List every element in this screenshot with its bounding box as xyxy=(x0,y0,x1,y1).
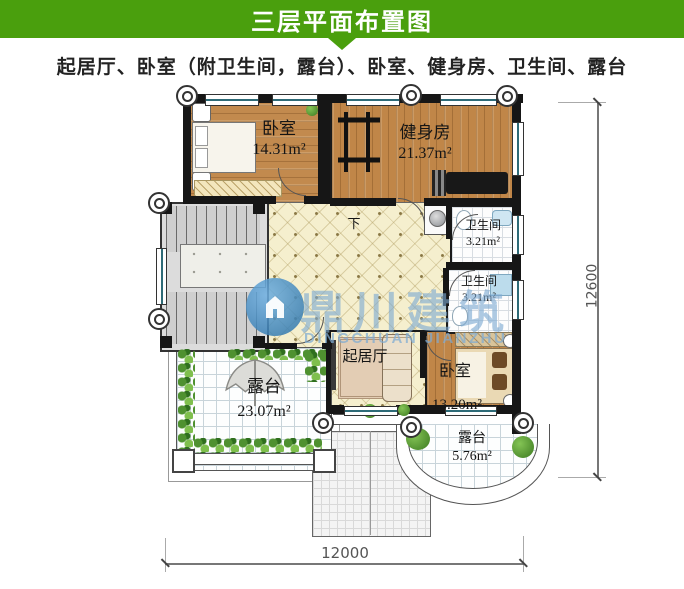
wall-left-upper xyxy=(183,94,191,204)
stair-landing xyxy=(180,244,266,288)
room-area: 21.37m² xyxy=(380,144,470,165)
room-area: 3.21m² xyxy=(452,234,514,250)
room-label-bedroom-bottom-area: 13.20m² xyxy=(424,396,490,416)
column-symbol xyxy=(312,412,334,434)
window xyxy=(440,94,497,106)
wall-bedroom-top-south xyxy=(188,196,276,204)
wall-living-bedroom-divider xyxy=(420,332,426,378)
sofa xyxy=(382,334,412,402)
plant-icon xyxy=(512,436,534,458)
terrace-railing xyxy=(176,453,330,465)
dim-line-bottom xyxy=(165,563,524,565)
bed-pillow xyxy=(195,126,208,146)
column-symbol xyxy=(400,416,422,438)
terrace-post xyxy=(172,449,195,473)
room-label-bedroom-top: 卧室 14.31m² xyxy=(238,118,320,161)
room-label-terrace-large: 露台 23.07m² xyxy=(218,376,310,423)
wall-hall-south xyxy=(322,343,332,349)
floor-plan-page: { "header": { "title": "三层平面布置图" }, "sub… xyxy=(0,0,684,589)
window xyxy=(512,280,524,320)
column-symbol xyxy=(496,85,518,107)
bed-pillow xyxy=(195,148,208,168)
terrace-post xyxy=(313,449,336,473)
column-symbol xyxy=(148,308,170,330)
room-name: 起居厅 xyxy=(342,349,387,365)
room-name: 健身房 xyxy=(380,122,470,144)
nightstand xyxy=(192,103,211,122)
gym-rack-icon xyxy=(338,108,380,176)
window xyxy=(272,94,318,106)
page-title: 三层平面布置图 xyxy=(251,2,433,37)
room-area: 14.31m² xyxy=(238,140,320,161)
room-label-terrace-small: 露台 5.76m² xyxy=(436,430,508,466)
stair-corner xyxy=(160,336,172,348)
stair-flight-lower xyxy=(166,292,260,344)
gym-bench-icon xyxy=(446,172,508,194)
terrace-plants-left xyxy=(178,349,195,455)
header-bar: 三层平面布置图 xyxy=(0,0,684,38)
window xyxy=(205,94,259,106)
column-symbol xyxy=(148,192,170,214)
window xyxy=(512,122,524,176)
dim-value-bottom: 12000 xyxy=(300,544,390,562)
column-symbol xyxy=(512,412,534,434)
room-name: 露台 xyxy=(218,376,310,398)
stair-corner xyxy=(253,336,265,348)
header-pointer-triangle xyxy=(328,38,356,50)
bed-pillow xyxy=(492,352,507,368)
room-label-bedroom-bottom-name: 卧室 xyxy=(427,362,483,383)
wash-basin-icon xyxy=(429,210,446,227)
gym-weights-icon xyxy=(432,170,446,196)
wall-living-west xyxy=(326,330,331,410)
bedroom-rug xyxy=(194,180,282,197)
room-list-subtitle: 起居厅、卧室（附卫生间，露台）、卧室、健身房、卫生间、露台 xyxy=(0,52,684,79)
dim-extension-line xyxy=(523,536,524,572)
room-label-gym: 健身房 21.37m² xyxy=(380,122,470,165)
living-rug xyxy=(338,337,386,399)
window xyxy=(346,94,400,106)
room-label-living: 起居厅 xyxy=(332,348,398,368)
room-label-bath-upper: 卫生间 3.21m² xyxy=(452,218,514,249)
dim-extension-line xyxy=(165,538,166,572)
room-area: 13.20m² xyxy=(432,397,482,413)
wall-gym-south xyxy=(330,198,396,206)
room-name: 卧室 xyxy=(439,363,471,380)
column-symbol xyxy=(400,84,422,106)
wall-gym-south xyxy=(424,198,516,206)
wall-bedroom-top-south xyxy=(304,196,320,204)
room-label-bath-lower: 卫生间 3.21m² xyxy=(448,274,510,305)
room-name: 卫生间 xyxy=(452,218,514,234)
toilet-icon xyxy=(452,306,468,326)
column-symbol xyxy=(176,85,198,107)
room-name: 卧室 xyxy=(238,118,320,140)
window xyxy=(156,248,167,305)
window xyxy=(344,406,398,416)
stair-direction-label: 下 xyxy=(346,216,362,233)
wall-hall-south xyxy=(265,343,297,349)
room-area: 5.76m² xyxy=(436,448,508,466)
room-name: 卫生间 xyxy=(448,274,510,290)
room-name: 露台 xyxy=(436,430,508,448)
dim-value-right: 12600 xyxy=(584,264,600,309)
plant-icon xyxy=(306,104,318,116)
wall-bath-divider xyxy=(446,262,518,269)
patio-center-line xyxy=(370,431,371,535)
room-area: 23.07m² xyxy=(218,402,310,423)
plant-icon xyxy=(398,404,410,416)
bed-pillow xyxy=(492,374,507,390)
room-area: 3.21m² xyxy=(448,290,510,306)
